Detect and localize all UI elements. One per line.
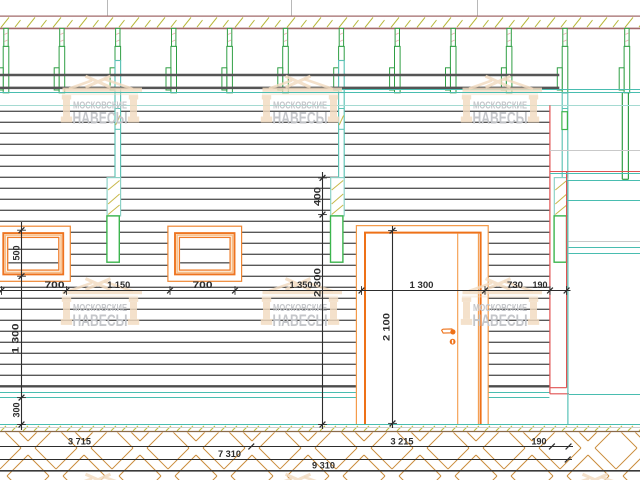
svg-text:3 715: 3 715 bbox=[68, 436, 92, 447]
svg-text:3 215: 3 215 bbox=[391, 436, 415, 447]
svg-text:730: 730 bbox=[507, 280, 523, 291]
svg-text:2 100: 2 100 bbox=[382, 313, 393, 341]
svg-text:1 350: 1 350 bbox=[290, 280, 313, 291]
svg-text:9 310: 9 310 bbox=[312, 461, 335, 472]
svg-text:700: 700 bbox=[193, 280, 213, 291]
svg-text:2 300: 2 300 bbox=[313, 268, 324, 297]
svg-text:1 300: 1 300 bbox=[410, 280, 434, 291]
svg-text:7 310: 7 310 bbox=[218, 449, 241, 460]
svg-text:1 150: 1 150 bbox=[107, 280, 130, 291]
svg-text:700: 700 bbox=[45, 280, 65, 291]
svg-text:190: 190 bbox=[532, 437, 547, 448]
svg-text:1 300: 1 300 bbox=[11, 324, 22, 354]
svg-text:190: 190 bbox=[533, 280, 548, 291]
svg-text:300: 300 bbox=[12, 403, 23, 418]
svg-text:400: 400 bbox=[313, 187, 324, 206]
svg-text:500: 500 bbox=[12, 246, 23, 261]
